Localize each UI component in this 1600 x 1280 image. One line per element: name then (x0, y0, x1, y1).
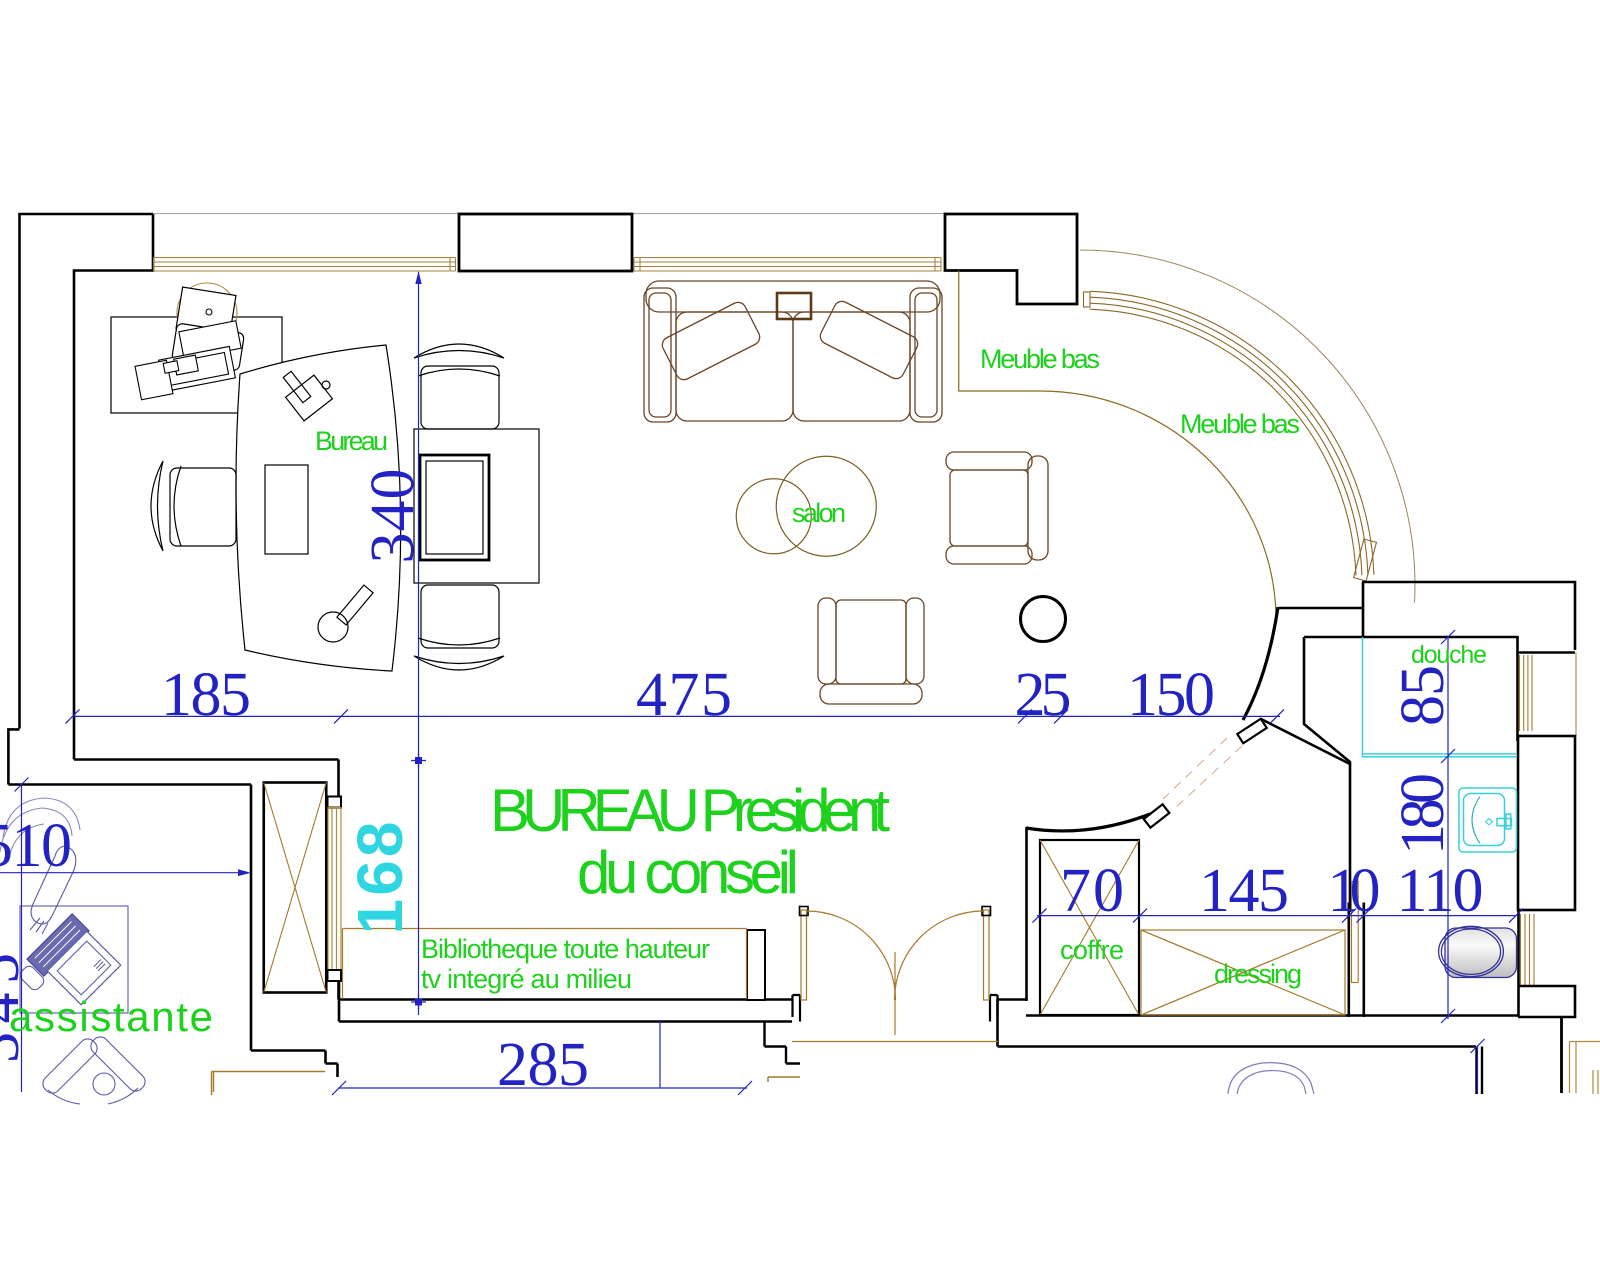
svg-text:340: 340 (359, 469, 427, 564)
svg-text:Bureau: Bureau (315, 426, 388, 456)
svg-text:dressing: dressing (1214, 959, 1302, 989)
svg-text:salon: salon (792, 498, 846, 528)
svg-text:145: 145 (1199, 857, 1289, 925)
svg-text:Meuble bas: Meuble bas (980, 344, 1100, 374)
svg-text:BUREAU President: BUREAU President (490, 777, 890, 844)
svg-text:assistante: assistante (9, 993, 213, 1040)
svg-text:285: 285 (497, 1031, 589, 1099)
svg-text:85: 85 (1389, 665, 1457, 726)
svg-text:185: 185 (161, 661, 251, 729)
svg-text:Meuble bas: Meuble bas (1180, 409, 1300, 439)
svg-text:110: 110 (1397, 857, 1484, 925)
svg-text:150: 150 (1127, 661, 1215, 729)
svg-text:475: 475 (636, 661, 732, 729)
svg-text:douche: douche (1411, 641, 1487, 669)
svg-text:tv integré au milieu: tv integré au milieu (421, 964, 632, 994)
svg-text:180: 180 (1389, 773, 1457, 855)
svg-text:510: 510 (0, 812, 72, 880)
svg-text:168: 168 (344, 822, 416, 935)
svg-text:coffre: coffre (1060, 935, 1124, 965)
svg-text:25: 25 (1015, 661, 1072, 729)
svg-text:du conseil: du conseil (577, 839, 799, 906)
svg-text:10: 10 (1328, 857, 1381, 925)
svg-text:Bibliotheque toute hauteur: Bibliotheque toute hauteur (421, 934, 710, 964)
